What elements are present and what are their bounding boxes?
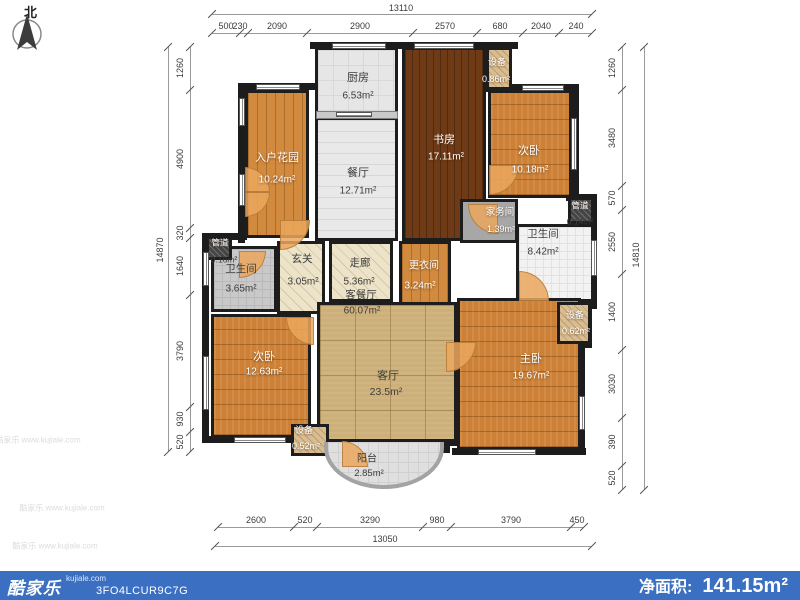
dim-top-seg-3: 2900 [350,21,370,31]
label-balcony-area: 2.85m² [354,469,384,479]
label-duct-right-area: 0.14m² [567,217,593,226]
dim-right-seg-7: 520 [607,470,617,485]
dim-top-total: 13110 [389,3,413,13]
window-symbol [571,118,577,170]
label-balcony-name: 阳台 [357,454,377,465]
label-kitchen-area: 6.53m² [342,91,373,102]
window-symbol [414,43,474,49]
dim-right-seg-5: 3030 [607,374,617,394]
dim-right-seg-4: 1400 [607,302,617,322]
north-compass: 北 [4,2,52,56]
floorplan-canvas: 北 厨房6.53m²餐厅12.71m²入户花园10.24m²书房17.11m²设… [0,0,800,600]
plan-code: 3FO4LCUR9C7G [96,585,188,597]
dim-line [190,47,191,452]
label-equip-top-area: 0.86m² [482,75,510,85]
window-symbol [591,240,597,276]
label-study-area: 17.11m² [428,152,464,163]
dim-bottom-total: 13050 [372,534,397,544]
label-living-area: 23.5m² [370,387,403,399]
footer-bar: 酷家乐 kujiale.com 3FO4LCUR9C7G 净面积:141.15m… [0,571,800,600]
dim-top-seg-7: 240 [568,21,583,31]
dim-top-seg-0: 500 [218,21,233,31]
dim-bottom-seg-1: 520 [297,515,312,525]
dim-left-seg-0: 1260 [175,58,185,78]
dim-line [218,527,584,528]
dim-right-total: 14810 [631,242,641,267]
dim-top-seg-1: 230 [232,21,247,31]
label-living-dining-name: 客餐厅 [345,290,377,302]
kujiale-logo: 酷家乐 [7,574,61,599]
window-symbol [332,43,386,49]
kujiale-site-text: kujiale.com [66,574,106,583]
dim-line [644,47,645,490]
label-bedroom-bottom-name: 次卧 [253,351,275,363]
dim-top-seg-6: 2040 [531,21,551,31]
dim-right-seg-0: 1260 [607,58,617,78]
label-dressing-area: 3.24m² [404,281,435,292]
label-bedroom-top-area: 10.18m² [512,165,549,176]
label-kitchen-name: 厨房 [347,72,369,84]
dim-line [212,14,592,15]
label-duct-left-name: 管道 [211,238,228,247]
dim-right-seg-6: 390 [607,434,617,449]
dim-right-seg-3: 2550 [607,232,617,252]
net-area: 净面积:141.15m² [639,573,788,598]
net-area-label: 净面积: [639,579,692,596]
label-master-area: 19.67m² [513,371,550,382]
dim-line [168,47,169,452]
label-equip-top-name: 设备 [488,58,506,68]
label-equip-br-area: 0.62m² [562,327,590,337]
dim-line [622,47,623,490]
label-foyer-name: 玄关 [292,254,313,266]
dim-top-seg-4: 2570 [435,21,455,31]
label-bedroom-top-name: 次卧 [518,145,540,157]
label-study-name: 书房 [433,134,455,146]
window-symbol [478,449,536,455]
label-laundry-name: 家务间 [486,208,515,218]
window-symbol [336,112,372,117]
label-bath-main-area: 8.42m² [527,247,558,258]
window-symbol [239,98,245,126]
dim-line [215,546,592,547]
label-corridor-area: 5.36m² [343,277,374,288]
dim-left-seg-4: 3790 [175,341,185,361]
label-dining-area: 12.71m² [340,186,377,197]
label-master-name: 主卧 [520,353,542,365]
label-duct-right-name: 管道 [571,201,588,210]
dim-right-seg-2: 570 [607,190,617,205]
dim-right-seg-1: 3480 [607,128,617,148]
window-symbol [234,437,286,443]
dim-left-seg-2: 320 [175,225,185,240]
floorplan-page: { "north": {"label": "北"}, "watermarks":… [0,0,800,600]
dim-left-seg-6: 520 [175,434,185,449]
label-equip-br-name: 设备 [566,311,584,321]
label-dressing-name: 更衣间 [409,261,439,272]
watermark-text: 酷家乐 www.kujiale.com [12,541,97,552]
dim-bottom-seg-2: 3290 [360,515,380,525]
dim-bottom-seg-5: 450 [569,515,584,525]
label-bath-small-name: 卫生间 [225,264,257,276]
window-symbol [579,396,585,430]
label-laundry-area: 1.39m² [487,225,515,235]
label-equip-bl-name: 设备 [295,426,313,436]
label-bath-main-name: 卫生间 [527,229,559,241]
label-dining-name: 餐厅 [347,167,369,179]
window-symbol [203,356,209,410]
dim-left-total: 14870 [155,237,165,262]
dim-top-seg-2: 2090 [267,21,287,31]
label-bedroom-bottom-area: 12.63m² [246,367,283,378]
label-equip-bl-area: 0.52m² [292,442,320,452]
room-equip-br [557,302,591,344]
watermark-text: 酷家乐 www.kujiale.com [19,503,104,514]
label-bath-small-area: 3.65m² [225,284,256,295]
north-label: 北 [24,2,37,21]
label-foyer-area: 3.05m² [287,277,318,288]
watermark-text: 酷家乐 www.kujiale.com [0,435,81,446]
label-entry-garden-area: 10.24m² [259,175,296,186]
window-symbol [256,84,300,90]
label-entry-garden-name: 入户花园 [255,152,299,164]
label-living-dining-area: 60.07m² [344,306,381,317]
window-symbol [522,85,564,91]
label-living-name: 客厅 [377,370,399,382]
label-corridor-name: 走廊 [350,258,371,270]
dim-bottom-seg-0: 2600 [246,515,266,525]
net-area-value: 141.15m² [702,575,788,597]
dim-left-seg-3: 1640 [175,256,185,276]
dim-bottom-seg-4: 3790 [501,515,521,525]
dim-left-seg-5: 930 [175,411,185,426]
window-symbol [203,252,209,286]
dim-top-seg-5: 680 [492,21,507,31]
dim-bottom-seg-3: 980 [429,515,444,525]
dim-left-seg-1: 4900 [175,149,185,169]
dim-line [212,33,592,34]
